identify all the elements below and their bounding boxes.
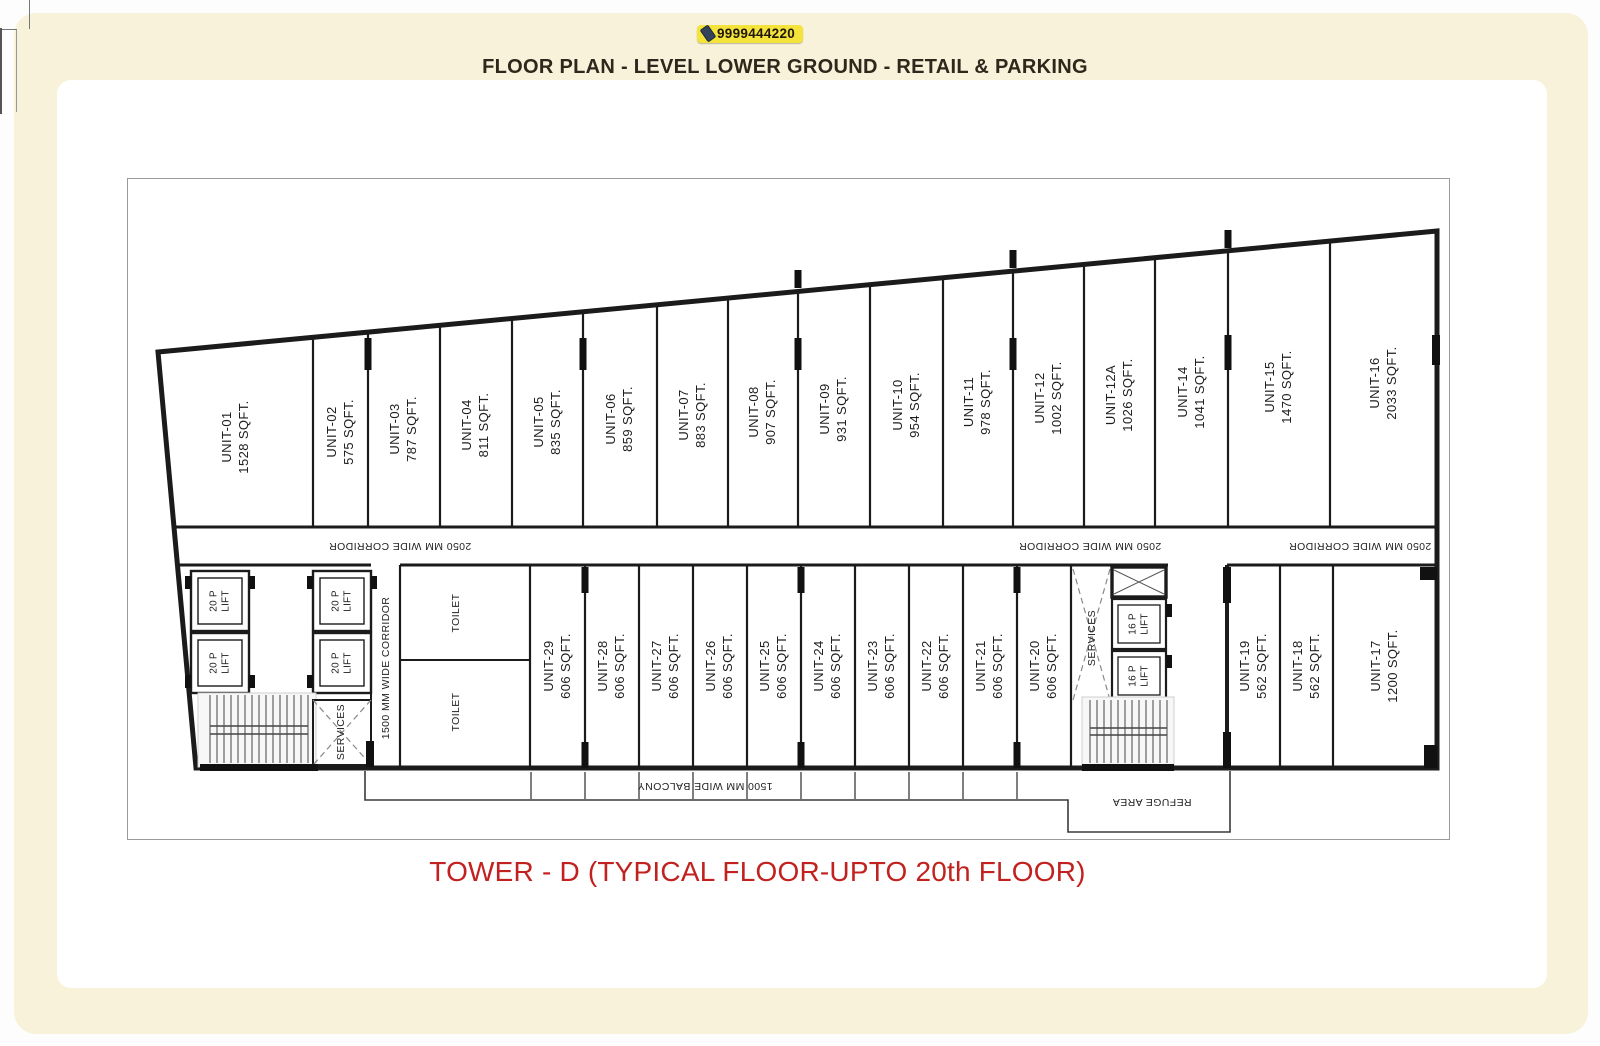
unit-label-unit-11: UNIT-11978 SQFT. <box>961 369 995 435</box>
unit-label-unit-14: UNIT-141041 SQFT. <box>1175 355 1209 428</box>
label-line-2: 883 SQFT. <box>693 382 708 448</box>
label-line-2: LIFT <box>1139 613 1150 634</box>
label-line-2: 1528 SQFT. <box>236 400 251 473</box>
unit-label-unit-02: UNIT-02575 SQFT. <box>324 399 358 465</box>
services-label-left: SERVICES <box>335 704 347 760</box>
label-line-2: 606 SQFT. <box>990 633 1005 699</box>
label-line-1: UNIT-12 <box>1032 373 1047 424</box>
label-line-1: UNIT-18 <box>1290 640 1305 691</box>
lift-16p-label: 16 PLIFT <box>1128 613 1151 634</box>
tower-caption: TOWER - D (TYPICAL FLOOR-UPTO 20th FLOOR… <box>0 856 1515 888</box>
page: { "header": { "phone": "9999444220", "ti… <box>0 0 1600 1046</box>
label-line-2: LIFT <box>1139 665 1150 686</box>
lift-16p-label: 16 PLIFT <box>1128 665 1151 686</box>
unit-label-unit-16: UNIT-162033 SQFT. <box>1367 346 1401 419</box>
balcony-refuge-outline <box>365 771 1230 832</box>
label-line-2: 562 SQFT. <box>1254 633 1269 699</box>
vertical-corridor-label: 1500 MM WIDE CORRIDOR <box>380 597 392 740</box>
label-line-2: 606 SQFT. <box>936 633 951 699</box>
label-line-2: 907 SQFT. <box>763 379 778 445</box>
floor-plan-drawing <box>0 0 1600 1046</box>
label-line-2: 606 SQFT. <box>774 633 789 699</box>
unit-label-unit-10: UNIT-10954 SQFT. <box>890 372 924 438</box>
toilet-label-1: TOILET <box>450 594 462 633</box>
label-line-1: UNIT-23 <box>865 640 880 691</box>
label-line-2: 859 SQFT. <box>620 386 635 452</box>
label-line-1: UNIT-27 <box>649 640 664 691</box>
label-line-1: 16 P <box>1128 613 1139 634</box>
unit-label-unit-17: UNIT-171200 SQFT. <box>1368 629 1402 702</box>
label-line-1: UNIT-25 <box>757 640 772 691</box>
label-line-1: UNIT-10 <box>890 380 905 431</box>
unit-label-unit-12: UNIT-121002 SQFT. <box>1032 362 1066 435</box>
label-line-1: UNIT-07 <box>676 390 691 441</box>
label-line-1: 20 P <box>331 652 342 673</box>
label-line-2: 931 SQFT. <box>834 376 849 442</box>
label-line-2: 954 SQFT. <box>907 372 922 438</box>
unit-label-unit-29: UNIT-29606 SQFT. <box>541 633 575 699</box>
label-line-2: LIFT <box>342 652 353 673</box>
label-line-2: 606 SQFT. <box>666 633 681 699</box>
unit-label-unit-26: UNIT-26606 SQFT. <box>703 633 737 699</box>
label-line-1: 20 P <box>209 590 220 611</box>
label-line-2: 606 SQFT. <box>882 633 897 699</box>
label-line-1: 20 P <box>209 652 220 673</box>
unit-label-unit-12a: UNIT-12A1026 SQFT. <box>1103 358 1137 431</box>
label-line-2: 606 SQFT. <box>612 633 627 699</box>
label-line-2: 835 SQFT. <box>548 389 563 455</box>
label-line-1: UNIT-14 <box>1175 366 1190 417</box>
label-line-2: 1002 SQFT. <box>1049 362 1064 435</box>
unit-label-unit-05: UNIT-05835 SQFT. <box>531 389 565 455</box>
unit-label-unit-25: UNIT-25606 SQFT. <box>757 633 791 699</box>
services-label-right: SERVICES <box>1086 610 1098 666</box>
balcony-label: 1500 MM WIDE BALCONY <box>637 780 772 792</box>
unit-label-unit-15: UNIT-151470 SQFT. <box>1262 351 1296 424</box>
label-line-2: 606 SQFT. <box>828 633 843 699</box>
label-line-2: 606 SQFT. <box>1044 633 1059 699</box>
unit-label-unit-24: UNIT-24606 SQFT. <box>811 633 845 699</box>
label-line-1: UNIT-15 <box>1262 362 1277 413</box>
unit-label-unit-18: UNIT-18562 SQFT. <box>1290 633 1324 699</box>
unit-label-unit-04: UNIT-04811 SQFT. <box>459 393 493 458</box>
label-line-1: UNIT-06 <box>603 393 618 444</box>
label-line-2: 1470 SQFT. <box>1279 351 1294 424</box>
unit-label-unit-03: UNIT-03787 SQFT. <box>387 396 421 462</box>
label-line-2: 2033 SQFT. <box>1384 346 1399 419</box>
label-line-2: 811 SQFT. <box>476 393 491 458</box>
label-line-1: UNIT-02 <box>324 406 339 457</box>
stair-right <box>1082 697 1174 765</box>
label-line-2: 575 SQFT. <box>341 399 356 465</box>
unit-label-unit-23: UNIT-23606 SQFT. <box>865 633 899 699</box>
label-line-1: 20 P <box>331 590 342 611</box>
unit-label-unit-01: UNIT-011528 SQFT. <box>219 400 253 473</box>
label-line-1: 16 P <box>1128 665 1139 686</box>
label-line-2: LIFT <box>220 652 231 673</box>
unit-label-unit-07: UNIT-07883 SQFT. <box>676 382 710 448</box>
label-line-1: UNIT-17 <box>1368 640 1383 691</box>
label-line-1: UNIT-09 <box>817 383 832 434</box>
unit-label-unit-06: UNIT-06859 SQFT. <box>603 386 637 452</box>
unit-label-unit-28: UNIT-28606 SQFT. <box>595 633 629 699</box>
label-line-1: UNIT-01 <box>219 411 234 462</box>
label-line-1: UNIT-03 <box>387 403 402 454</box>
lift-20p-label: 20 PLIFT <box>331 652 354 673</box>
label-line-2: 1026 SQFT. <box>1120 358 1135 431</box>
label-line-2: 978 SQFT. <box>978 369 993 435</box>
label-line-1: UNIT-19 <box>1237 640 1252 691</box>
label-line-1: UNIT-08 <box>746 386 761 437</box>
corridor-label-right: 2050 MM WIDE CORRIDOR <box>1289 540 1432 552</box>
label-line-2: LIFT <box>220 590 231 611</box>
label-line-1: UNIT-05 <box>531 396 546 447</box>
unit-label-unit-21: UNIT-21606 SQFT. <box>973 633 1007 699</box>
label-line-2: 1041 SQFT. <box>1192 355 1207 428</box>
toilet-label-2: TOILET <box>450 693 462 732</box>
label-line-1: UNIT-28 <box>595 640 610 691</box>
label-line-1: UNIT-04 <box>459 400 474 451</box>
label-line-2: 606 SQFT. <box>558 633 573 699</box>
refuge-area-label: REFUGE AREA <box>1112 796 1191 808</box>
unit-label-unit-19: UNIT-19562 SQFT. <box>1237 633 1271 699</box>
corridor-label-middle: 2050 MM WIDE CORRIDOR <box>1019 540 1162 552</box>
unit-label-unit-09: UNIT-09931 SQFT. <box>817 376 851 442</box>
unit-label-unit-22: UNIT-22606 SQFT. <box>919 633 953 699</box>
label-line-1: UNIT-26 <box>703 640 718 691</box>
unit-label-unit-08: UNIT-08907 SQFT. <box>746 379 780 445</box>
label-line-1: UNIT-11 <box>961 377 976 427</box>
label-line-1: UNIT-24 <box>811 640 826 691</box>
label-line-1: UNIT-16 <box>1367 357 1382 408</box>
stair-left <box>198 693 316 767</box>
lift-20p-label: 20 PLIFT <box>209 652 232 673</box>
unit-label-unit-27: UNIT-27606 SQFT. <box>649 633 683 699</box>
label-line-1: UNIT-21 <box>973 640 988 691</box>
label-line-1: UNIT-22 <box>919 640 934 691</box>
label-line-1: UNIT-20 <box>1027 640 1042 691</box>
lift-20p-label: 20 PLIFT <box>209 590 232 611</box>
label-line-1: UNIT-12A <box>1103 365 1118 425</box>
label-line-2: 787 SQFT. <box>404 396 419 462</box>
label-line-1: UNIT-29 <box>541 640 556 691</box>
corridor-label-left: 2050 MM WIDE CORRIDOR <box>329 540 472 552</box>
lift-20p-label: 20 PLIFT <box>331 590 354 611</box>
label-line-2: 606 SQFT. <box>720 633 735 699</box>
label-line-2: LIFT <box>342 590 353 611</box>
label-line-2: 562 SQFT. <box>1307 633 1322 699</box>
unit-label-unit-20: UNIT-20606 SQFT. <box>1027 633 1061 699</box>
label-line-2: 1200 SQFT. <box>1385 629 1400 702</box>
